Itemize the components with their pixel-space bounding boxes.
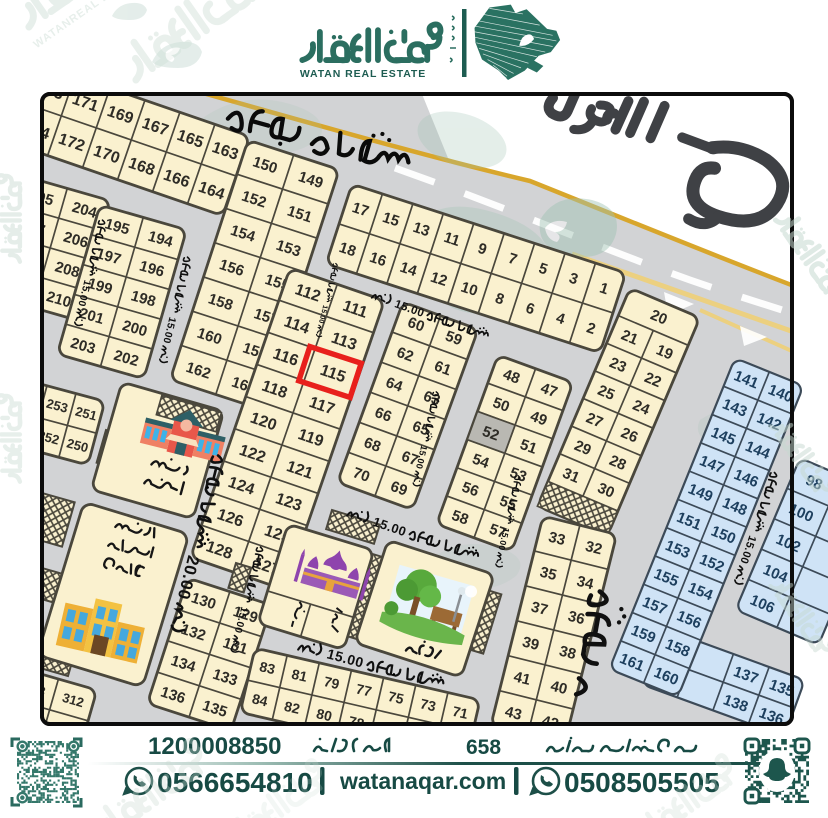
svg-text:watanaqar.com: watanaqar.com — [339, 768, 506, 794]
svg-text:658: 658 — [466, 736, 501, 759]
svg-text:WATAN REAL ESTATE: WATAN REAL ESTATE — [300, 68, 426, 80]
svg-text:1200008850: 1200008850 — [148, 733, 281, 760]
